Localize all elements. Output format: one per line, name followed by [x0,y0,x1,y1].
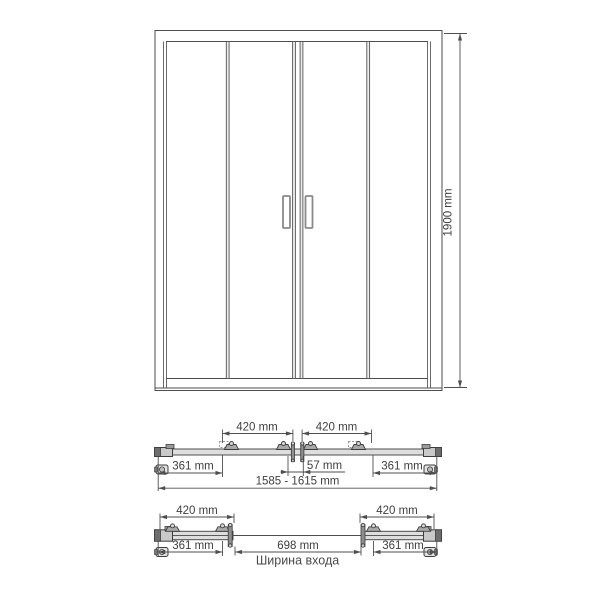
rail-closed [156,449,440,455]
center-post-left-knob [291,442,294,445]
dim-57-center-closed-label: 57 mm [307,460,342,472]
roller-wheel-2 [282,442,286,446]
wall-cap-left-nub [166,445,174,449]
panel-divider-right [367,42,370,379]
dim-total-width-label: 1585 - 1615 mm [256,476,340,488]
entry-width-caption: Ширина входа [256,554,339,568]
dim-420-right-closed: 420 mm [302,422,371,444]
center-post-left-knob-bottom [292,459,295,462]
door-edge-post-left [228,525,232,547]
shower-door-technical-drawing: 1900 mm [0,0,600,600]
panel-divider-left [226,42,229,379]
top-view-closed: 420 mm 420 mm 361 mm 57 mm [155,422,442,492]
product-dimension-image: 1900 mm [0,0,600,600]
dim-420-left-closed: 420 mm [223,422,293,444]
roller-wheel-1 [230,442,234,446]
dim-361-right-open-label: 361 mm [382,540,424,552]
panel-divider-center-right [300,42,303,379]
dim-57-center-closed: 57 mm [281,456,346,476]
dim-361-right-closed-label: 361 mm [381,461,423,473]
center-post-right-knob [301,442,304,445]
dim-height-arrow-top [458,34,462,41]
front-view [155,31,442,391]
top-view-open: 420 mm 420 mm 361 mm 698 mm [155,505,442,568]
dim-height: 1900 mm [443,34,468,388]
roller-wheel-3 [309,442,313,446]
dim-total-width: 1585 - 1615 mm [158,476,437,492]
right-door-handle [306,196,313,228]
door-frame-outline [155,31,442,391]
wall-cap-right-nub [422,445,430,449]
dim-420-left-open-label: 420 mm [176,505,218,517]
dim-420-right-open-label: 420 mm [376,505,418,517]
door-edge-post-right [361,525,365,547]
roller-wheel-4 [357,442,361,446]
dim-698-entry-label: 698 mm [277,540,319,552]
dim-361-left-open-label: 361 mm [172,540,214,552]
left-door-handle [283,196,290,228]
dim-420-left-closed-label: 420 mm [236,422,278,434]
dim-height-label: 1900 mm [443,189,455,237]
panel-divider-center-left [293,42,296,379]
wall-cap-right-dark [436,448,442,457]
dim-420-right-closed-label: 420 mm [316,422,358,434]
wall-cap-left-dark [155,448,161,457]
dim-361-left-closed-label: 361 mm [172,461,214,473]
dim-height-arrow-bottom [458,381,462,388]
